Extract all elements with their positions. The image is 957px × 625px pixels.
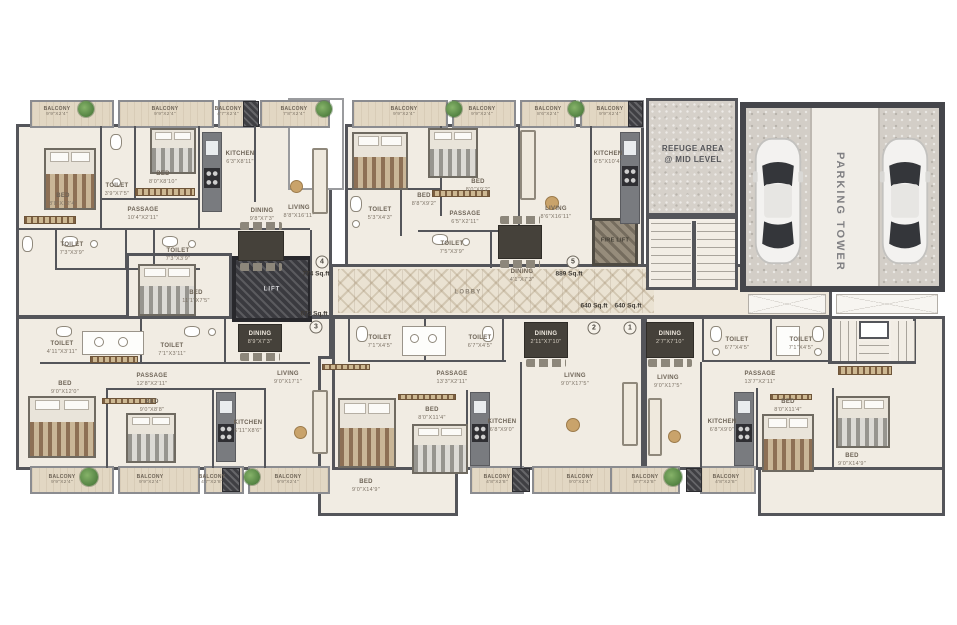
planter-icon [244,469,260,485]
washbasin-icon [118,337,128,347]
bed-label: BED8'8"x12'4" [49,193,77,207]
stair-flight [833,321,857,361]
wardrobe-icon [24,216,76,224]
bed-label: BED9'0"x12'0" [51,381,79,395]
toilet-wc-icon [184,326,200,337]
sofa-icon [648,398,662,456]
vanity-icon [402,326,446,356]
toilet-wc-icon [110,134,122,150]
bed-icon [28,396,96,458]
washbasin-icon [410,334,419,343]
kitchen-label: KITCHEN6'11"x8'6" [234,420,263,434]
lower-staircase [828,316,916,364]
balcony-label: BALCONY4'8"x2'8" [713,474,740,486]
bed-label: BED9'0"x14'9" [838,453,866,467]
lift-label: LIFT [264,286,281,294]
sofa-icon [312,390,328,454]
toilet-label: TOILET7'3"x3'9" [166,248,191,262]
wardrobe-icon [398,394,456,400]
car-icon [879,132,931,270]
coffee-table-icon [294,426,307,439]
toilet-label: TOILET7'5"x3'9" [440,241,465,255]
toilet-wc-icon [812,326,824,342]
floor-plan-canvas: PARKING TOWER [0,0,957,625]
unit-area-label: 889 Sq.ft [555,271,582,278]
coffee-table-icon [566,418,580,432]
kitchen-sink [219,400,233,414]
dining-chairs [240,222,282,230]
balcony-label: BALCONY9'9"x2'4" [137,474,164,486]
planter-icon [80,468,98,486]
duct-box [512,468,530,492]
planter-icon [78,101,94,117]
kitchen-label: KITCHEN6'8"x9'0" [488,419,517,433]
bed-icon [352,132,408,190]
toilet-wc-icon [162,236,178,247]
bed-label: BED8'0"x8'10" [149,171,177,185]
refuge-area-label: REFUGE AREA@ MID LEVEL [662,144,724,166]
unit-number-badge: 1 [624,322,637,335]
dining-chairs [240,353,280,361]
living-label: LIVING9'0"x17'1" [274,371,302,385]
vanity-icon [82,331,144,355]
stove-icon [218,424,234,442]
balcony-label: BALCONY7'8"x2'4" [281,106,308,118]
duct-box [628,101,643,127]
dining-label: DINING2'7"x7'10" [656,331,684,345]
planter-icon [664,468,682,486]
dining-chairs [500,216,540,224]
coffee-table-icon [668,430,681,443]
toilet-wc-icon [356,326,368,342]
stair-landing [859,321,889,339]
dining-chairs [500,260,540,268]
bed-icon [428,128,478,178]
duct-box [243,101,259,127]
unit-number-badge: 4 [316,256,329,269]
bed-icon [338,398,396,468]
passage-label: PASSAGE12'8"x2'11" [137,373,168,387]
planter-icon [316,101,332,117]
kitchen-sink [623,140,637,156]
kitchen-sink [205,140,219,156]
bed-label: BED9'0"x8'8" [140,399,165,413]
dining-chairs [648,359,692,367]
bed-label: BED8'0"x11'4" [774,399,802,413]
bed-label: BED11'1"x7'5" [182,290,210,304]
fire-lift-label: FIRE LIFT [601,238,629,245]
bed-icon [836,396,890,448]
toilet-label: TOILET4'11"x3'11" [47,341,78,355]
toilet-label: TOILET3'9"x7'5" [105,183,130,197]
balcony-label: BALCONY9'9"x2'4" [152,106,179,118]
stair-flight [651,221,691,287]
passage-label: PASSAGE6'5"x2'11" [450,211,481,225]
toilet-label: TOILET5'3"x4'3" [368,207,393,221]
stair-rail [692,221,696,287]
stove-icon [472,424,488,442]
wardrobe-icon [90,356,138,363]
kitchen-label: KITCHEN6'3"x8'11" [226,151,255,165]
bed-icon [412,424,468,474]
parking-tower-label: PARKING TOWER [834,152,846,272]
washbasin-icon [428,334,437,343]
coffee-table-icon [290,180,303,193]
unit-area-label: 640 Sq.ft [614,303,641,310]
washbasin-icon [352,220,360,228]
toilet-label: TOILET7'1"x4'5" [368,335,393,349]
balcony-label: BALCONY9'0"x2'4" [567,474,594,486]
planter-icon [568,101,584,117]
washbasin-icon [94,337,104,347]
vent-grille [836,294,938,314]
bed-icon [762,414,814,472]
toilet-label: TOILET7'3"x3'9" [60,242,85,256]
planter-icon [446,101,462,117]
toilet-wc-icon [22,236,33,252]
vent-grille [748,294,826,314]
bed-label: BED8'0"x9'2" [466,179,491,193]
toilet-label: TOILET6'7"x4'5" [468,335,493,349]
balcony-label: BALCONY9'9"x2'4" [49,474,76,486]
sofa-icon [520,130,536,200]
washbasin-icon [188,240,196,248]
washbasin-icon [208,328,216,336]
toilet-wc-icon [710,326,722,342]
unit-number-badge: 2 [588,322,601,335]
washbasin-icon [814,348,822,356]
balcony-label: BALCONY9'9"x2'4" [44,106,71,118]
bed-label: BED8'8"x9'2" [412,193,437,207]
living-label: LIVING8'8"x16'11" [284,205,315,219]
toilet-label: TOILET6'7"x4'5" [725,337,750,351]
stove-icon [736,424,752,442]
dining-label: DINING4'1"x7'3" [510,269,535,283]
kitchen-label: KITCHEN6'5"x10'4" [594,151,623,165]
dining-label: DINING8'9"x7'3" [248,331,273,345]
unit-number-badge: 3 [310,321,323,334]
toilet-wc-icon [56,326,72,337]
balcony-label: BALCONY9'9"x2'4" [391,106,418,118]
balcony-label: BALCONY4'7"x2'4" [215,106,242,118]
car-icon [752,132,804,270]
unit-area-label: 673 Sq.ft [300,311,327,318]
dining-chairs [240,263,282,271]
lobby-label: LOBBY [455,289,482,297]
kitchen-sink [737,400,751,414]
balcony-label: BALCONY4'7"x2'8" [199,474,226,486]
dining-table-icon [238,231,284,261]
sofa-icon [622,382,638,446]
living-label: LIVING9'0"x17'5" [561,373,589,387]
balcony-label: BALCONY8'7"x2'8" [632,474,659,486]
bed-icon [150,128,196,174]
balcony-label: BALCONY9'9"x2'4" [469,106,496,118]
bed-label: BED8'0"x11'4" [418,407,446,421]
kitchen-sink [473,400,487,414]
passage-label: PASSAGE13'3"x2'11" [437,371,468,385]
toilet-label: TOILET7'1"x4'5" [789,337,814,351]
refuge-staircase [646,216,738,290]
kitchen-label: KITCHEN6'8"x9'0" [708,419,737,433]
duct-box [686,468,702,492]
balcony-label: BALCONY9'9"x2'4" [597,106,624,118]
passage-label: PASSAGE10'4"x2'11" [128,207,159,221]
stove-icon [204,168,220,188]
wardrobe-icon [322,364,370,370]
living-label: LIVING9'0"x17'5" [654,375,682,389]
dining-chairs [526,359,566,367]
balcony-label: BALCONY8'6"x2'4" [535,106,562,118]
wardrobe-icon [135,188,195,196]
bed-label: BED9'0"x14'9" [352,479,380,493]
dining-label: DINING9'8"x7'3" [250,208,275,222]
unit-number-badge: 5 [567,256,580,269]
passage-label: PASSAGE13'7"x2'11" [745,371,776,385]
dining-label: DINING2'11"x7'10" [531,331,562,345]
balcony-label: BALCONY9'9"x2'4" [275,474,302,486]
bed-icon [126,413,176,463]
toilet-wc-icon [350,196,362,212]
living-label: LIVING8'6"x16'11" [541,206,572,220]
unit-area-label: 640 Sq.ft [580,303,607,310]
balcony-label: BALCONY4'8"x2'8" [484,474,511,486]
stair-flight [859,341,889,361]
washbasin-icon [90,240,98,248]
unit-area-label: 774 Sq.ft [302,271,329,278]
stair-flight [891,321,915,361]
washbasin-icon [712,348,720,356]
stair-flight [697,221,735,287]
dining-table-icon [498,225,542,259]
stove-icon [622,166,638,186]
toilet-label: TOILET7'1"x3'11" [158,343,186,357]
wardrobe-icon [838,366,892,375]
